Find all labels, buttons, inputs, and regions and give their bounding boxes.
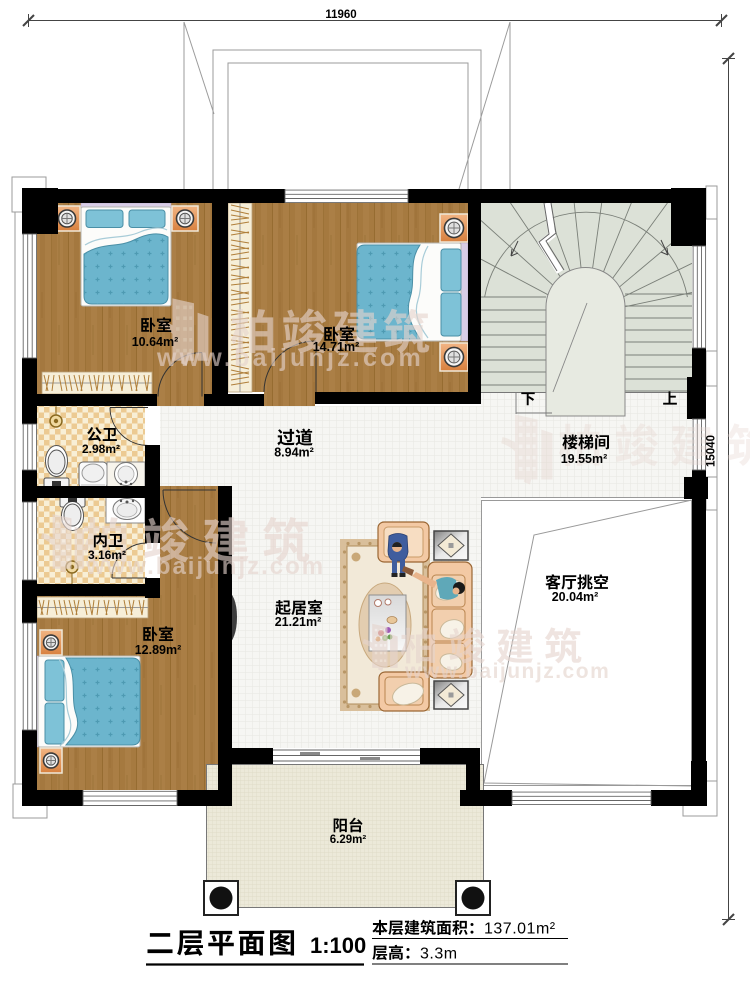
svg-text:21.21m²: 21.21m² — [275, 615, 322, 629]
svg-text:11960: 11960 — [325, 9, 356, 21]
svg-text:12.89m²: 12.89m² — [135, 643, 182, 657]
svg-text:www.baijunjz.com: www.baijunjz.com — [156, 344, 424, 372]
svg-text:3.3m: 3.3m — [420, 946, 458, 963]
svg-text:6.29m²: 6.29m² — [330, 834, 367, 846]
svg-text:10.64m²: 10.64m² — [132, 335, 179, 349]
svg-text:20.04m²: 20.04m² — [552, 590, 599, 604]
svg-text:www.baijunjz.com: www.baijunjz.com — [404, 660, 610, 683]
svg-text:2.98m²: 2.98m² — [82, 442, 120, 456]
svg-text:19.55m²: 19.55m² — [561, 452, 608, 466]
svg-text:1:100: 1:100 — [310, 933, 366, 958]
svg-text:15040: 15040 — [706, 435, 718, 467]
svg-text:3.16m²: 3.16m² — [88, 548, 126, 562]
svg-text:14.71m²: 14.71m² — [313, 340, 360, 354]
svg-text:8.94m²: 8.94m² — [274, 446, 314, 460]
svg-text:137.01m²: 137.01m² — [484, 921, 556, 938]
